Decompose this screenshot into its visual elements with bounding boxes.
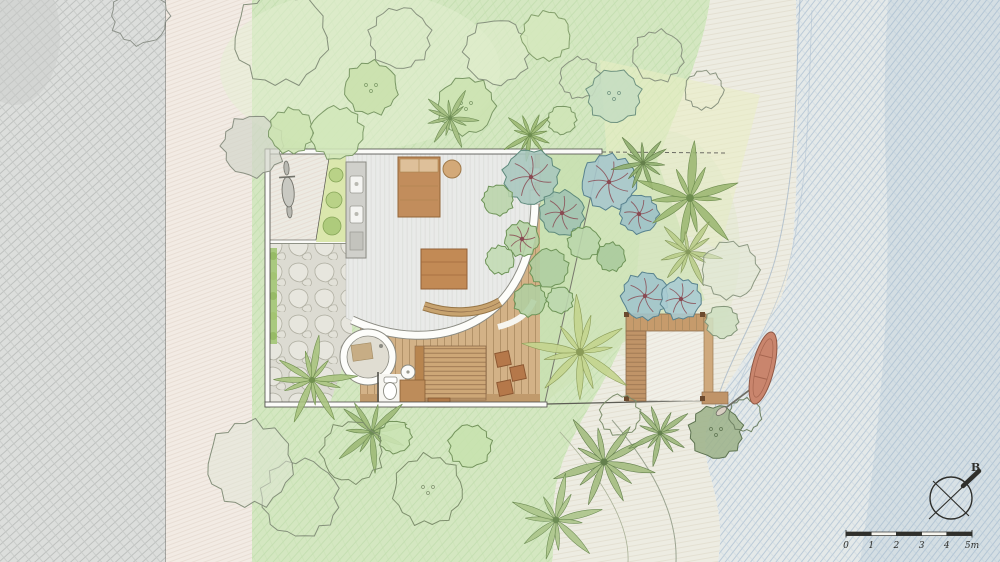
road-area [0, 0, 166, 562]
tree-center [560, 211, 564, 215]
scale-tick-label: 0 [843, 541, 849, 551]
palm-trunk [576, 348, 584, 356]
palm-trunk [448, 116, 452, 120]
site-plan-page: B 0 1 2 3 4 5m [0, 0, 1000, 562]
ottoman [443, 160, 461, 178]
scale-tick-label: 5m [965, 541, 979, 551]
compass-label: B [971, 461, 980, 474]
tree-center [529, 175, 533, 179]
kitchen-counter [346, 162, 366, 258]
bed [398, 157, 440, 217]
pavilion-post [700, 312, 705, 317]
site-plan-drawing: B 0 1 2 3 4 5m [0, 0, 1000, 562]
vanity [400, 380, 425, 403]
scale-tick-label: 1 [868, 541, 874, 551]
tree-center [679, 297, 683, 301]
west-wall [265, 149, 270, 407]
pavilion-post [624, 312, 629, 317]
slatted-spa-deck [415, 346, 486, 400]
scale-tick-label: 3 [919, 541, 925, 551]
toilet [384, 383, 397, 400]
pavilion-post [700, 396, 705, 401]
tree-center [643, 294, 647, 298]
scale-tick-label: 4 [943, 541, 950, 551]
scale-tick-label: 2 [893, 541, 900, 551]
coffee-table [421, 249, 467, 289]
shower-drain [379, 344, 383, 348]
tree-center [520, 237, 524, 241]
tree-center [637, 212, 641, 216]
south-wall [265, 402, 547, 407]
tree-center [607, 180, 611, 184]
bath-mat [351, 343, 373, 362]
